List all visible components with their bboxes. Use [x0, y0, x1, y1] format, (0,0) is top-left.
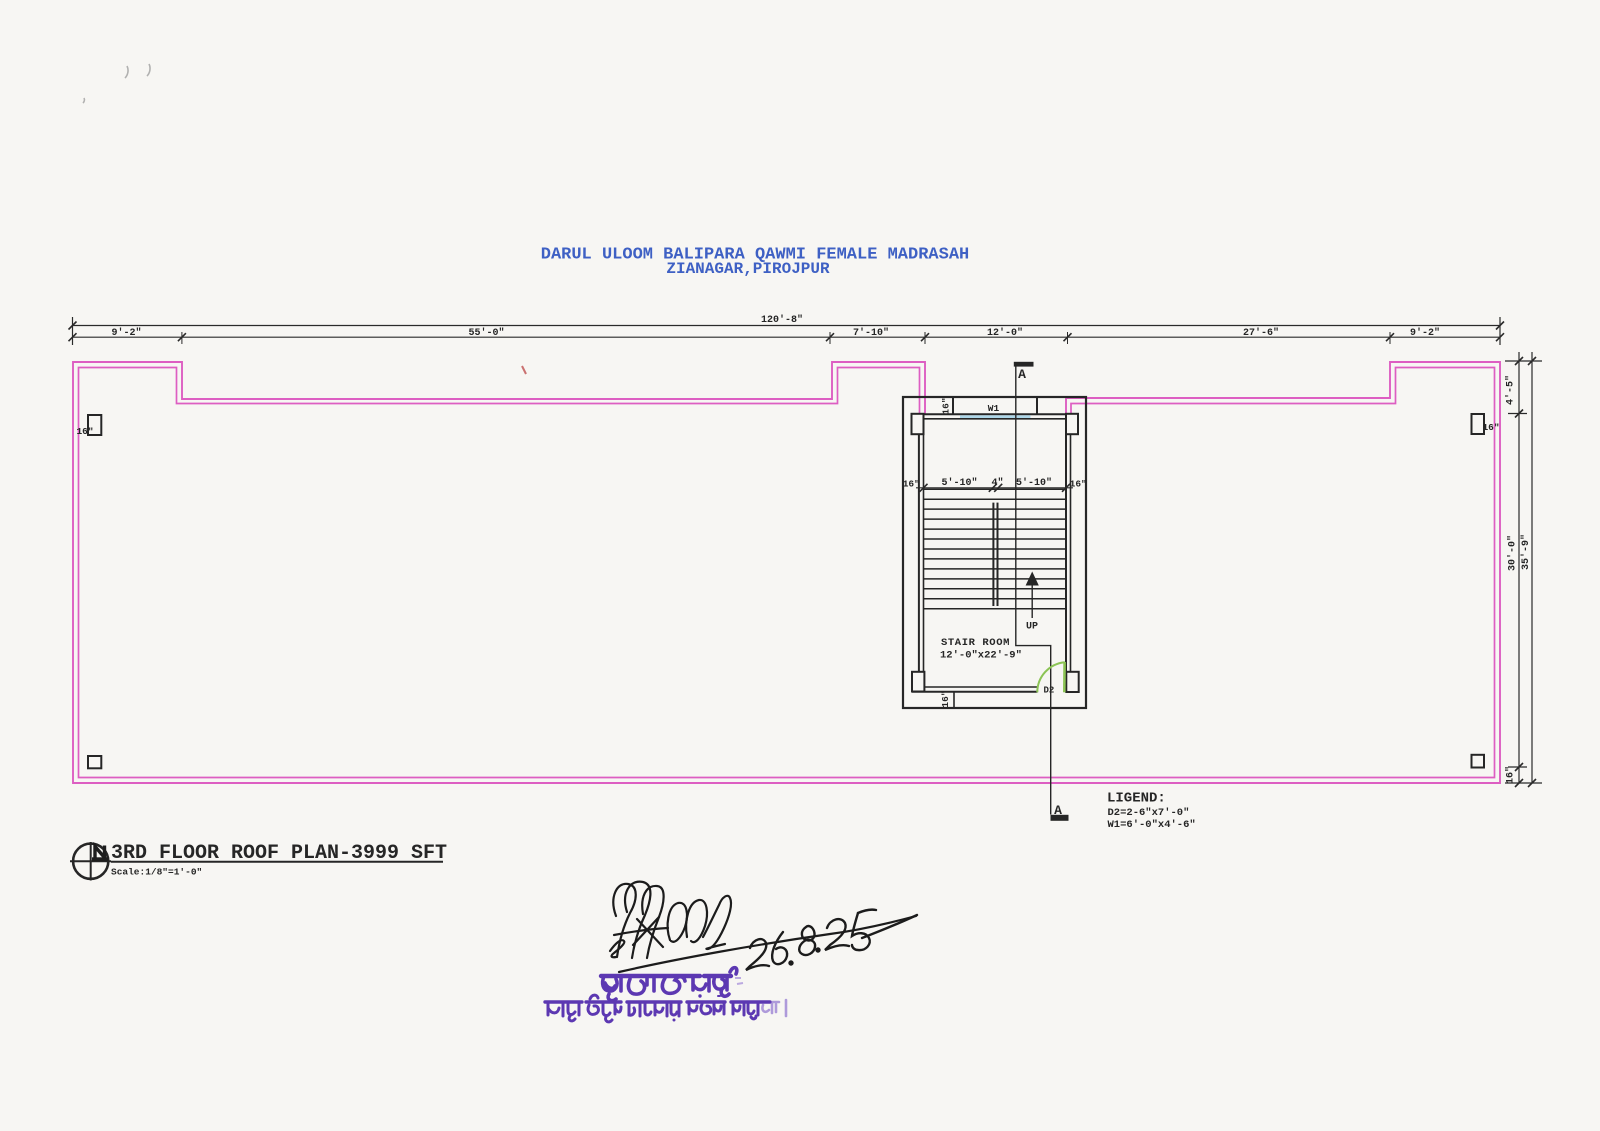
svg-text:Scale:1/8″=1'-0″: Scale:1/8″=1'-0″ — [111, 867, 202, 878]
svg-text:STAIR ROOM: STAIR ROOM — [941, 637, 1010, 649]
svg-text:16″: 16″ — [903, 479, 920, 490]
svg-text:7'-10″: 7'-10″ — [853, 327, 889, 339]
svg-text:D2=2-6″x7'-0″: D2=2-6″x7'-0″ — [1108, 807, 1190, 819]
svg-text:16″: 16″ — [940, 690, 951, 707]
svg-text:9'-2″: 9'-2″ — [1410, 327, 1440, 339]
svg-text:9'-2″: 9'-2″ — [111, 327, 141, 339]
svg-text:5'-10″: 5'-10″ — [1016, 477, 1052, 489]
svg-text:12'-0″x22'-9″: 12'-0″x22'-9″ — [940, 650, 1022, 662]
svg-text:16″: 16″ — [76, 426, 93, 437]
svg-text:A: A — [1054, 803, 1062, 818]
svg-text:5'-10″: 5'-10″ — [941, 477, 977, 489]
svg-text:W1=6'-0″x4'-6″: W1=6'-0″x4'-6″ — [1108, 819, 1196, 831]
svg-text:UP: UP — [1026, 622, 1038, 633]
svg-text:35'-9″: 35'-9″ — [1520, 534, 1532, 570]
svg-text:16″: 16″ — [1482, 422, 1499, 433]
svg-text:16″: 16″ — [1070, 479, 1087, 490]
svg-text:12'-0″: 12'-0″ — [987, 327, 1023, 339]
svg-text:W1: W1 — [988, 403, 1000, 414]
svg-text:A: A — [1018, 367, 1026, 382]
svg-text:ZIANAGAR,PIROJPUR: ZIANAGAR,PIROJPUR — [666, 260, 830, 278]
svg-text:55'-0″: 55'-0″ — [468, 327, 504, 339]
svg-text:4'-5″: 4'-5″ — [1505, 375, 1517, 405]
svg-text:30'-0″: 30'-0″ — [1507, 535, 1519, 571]
svg-text:D2: D2 — [1044, 686, 1055, 696]
svg-text:16″: 16″ — [1505, 766, 1517, 784]
svg-text:16″: 16″ — [941, 397, 952, 414]
svg-text:4″: 4″ — [991, 477, 1003, 489]
svg-text:LIGEND:: LIGEND: — [1107, 791, 1166, 807]
svg-text:120'-8″: 120'-8″ — [761, 314, 803, 326]
svg-text:27'-6″: 27'-6″ — [1243, 327, 1279, 339]
